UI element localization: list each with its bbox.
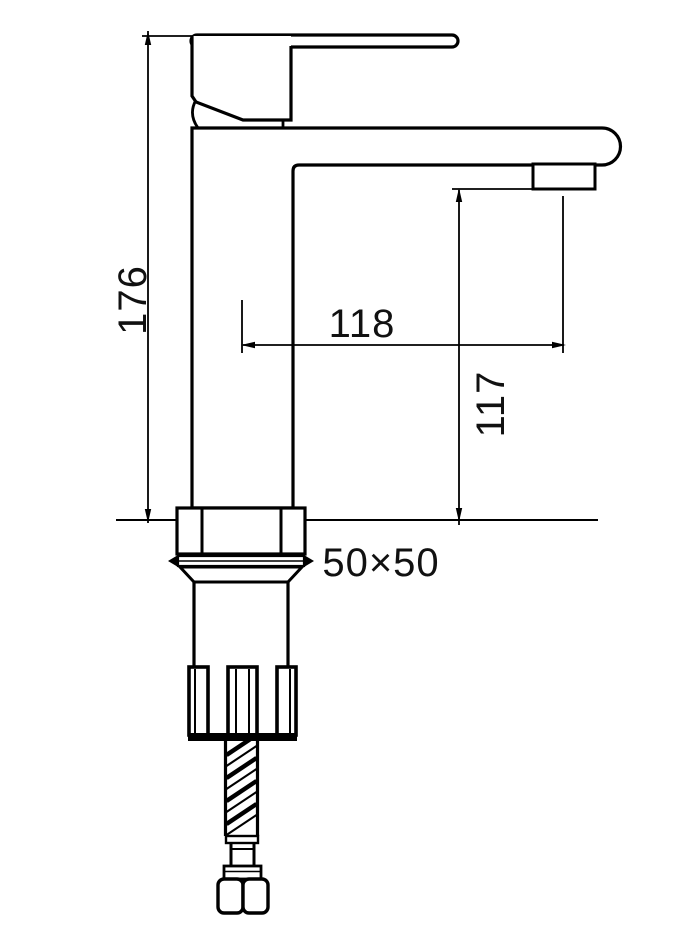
- base-flange: [177, 508, 305, 554]
- mount-nut-bottom-bar: [188, 733, 297, 741]
- faucet-technical-drawing: 176 118 117 50×50: [0, 0, 698, 930]
- hex-nut-face-right: [243, 879, 268, 913]
- mount-nut-prong-middle: [228, 667, 257, 735]
- base-cone: [180, 567, 302, 582]
- label-outlet-height: 117: [469, 371, 513, 438]
- aerator: [533, 164, 595, 189]
- label-overall-height: 176: [111, 265, 155, 335]
- hex-nut-face-left: [218, 879, 243, 913]
- mount-nut-prong-right: [277, 667, 296, 735]
- label-spout-reach: 118: [329, 302, 396, 346]
- hose-crimp-band: [226, 836, 258, 843]
- mount-nut-prong-left: [189, 667, 208, 735]
- label-base-size: 50×50: [322, 541, 439, 585]
- fitting-collar: [224, 866, 261, 879]
